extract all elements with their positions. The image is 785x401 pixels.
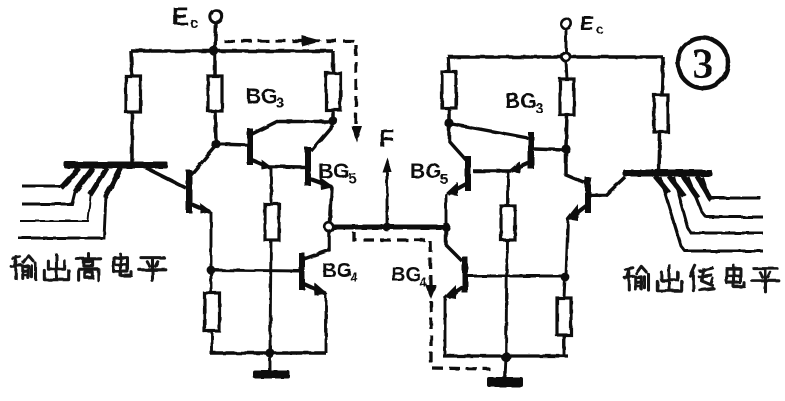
svg-text:3: 3 [693,42,714,88]
svg-text:4: 4 [350,269,358,285]
svg-text:c: c [190,15,198,32]
svg-text:3: 3 [276,95,284,112]
svg-text:BG: BG [246,85,278,108]
svg-text:F: F [379,125,394,153]
svg-text:5: 5 [348,170,356,187]
svg-text:E: E [580,13,594,36]
svg-text:E: E [172,3,189,31]
svg-text:BG: BG [318,160,350,183]
svg-text:5: 5 [440,171,448,188]
svg-text:3: 3 [535,100,543,117]
svg-text:BG: BG [410,160,442,183]
svg-text:BG: BG [505,90,537,113]
svg-text:c: c [596,22,603,37]
svg-text:BG: BG [391,264,421,286]
svg-text:4: 4 [419,274,427,290]
svg-text:BG: BG [322,260,352,282]
